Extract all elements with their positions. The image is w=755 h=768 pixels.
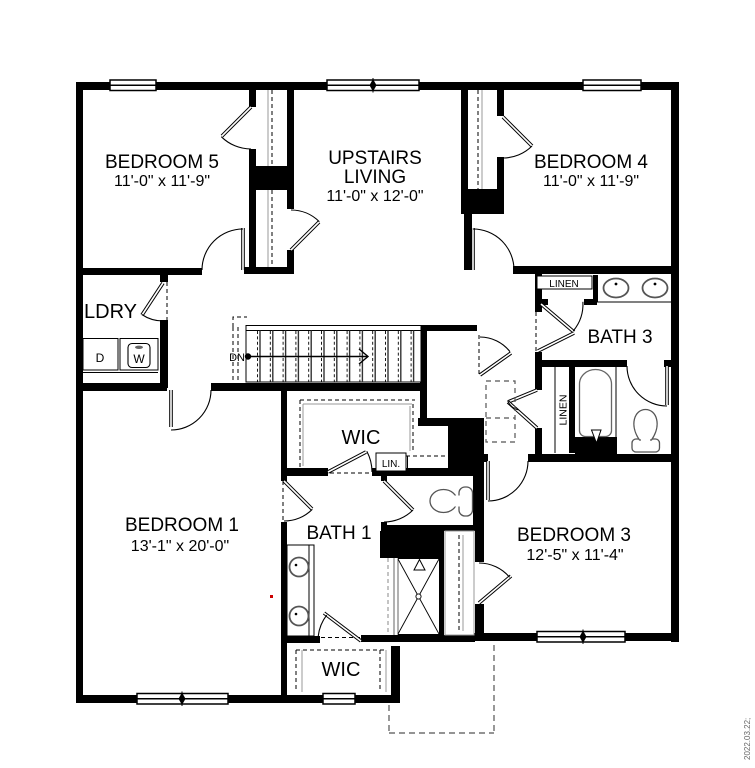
svg-text:11'-0" x 12'-0": 11'-0" x 12'-0" [326,188,423,205]
svg-text:LINEN: LINEN [549,279,578,290]
svg-text:LINEN: LINEN [558,395,570,426]
svg-text:BATH 1: BATH 1 [306,523,371,544]
svg-text:LIN.: LIN. [382,459,400,470]
svg-text:LIVING: LIVING [344,167,406,188]
svg-text:BATH 3: BATH 3 [587,327,652,348]
svg-text:BEDROOM 3: BEDROOM 3 [517,525,631,546]
svg-text:DN: DN [229,352,245,364]
svg-text:2022.03.22;: 2022.03.22; [743,718,752,760]
svg-text:BEDROOM 1: BEDROOM 1 [125,515,239,536]
svg-text:11'-0" x 11'-9": 11'-0" x 11'-9" [543,173,639,190]
svg-text:BEDROOM 4: BEDROOM 4 [534,152,648,173]
svg-text:WIC: WIC [322,659,361,681]
svg-text:BEDROOM 5: BEDROOM 5 [105,152,219,173]
svg-text:WIC: WIC [342,427,381,449]
svg-text:11'-0" x 11'-9": 11'-0" x 11'-9" [114,173,210,190]
svg-text:UPSTAIRS: UPSTAIRS [328,148,422,169]
svg-text:13'-1" x 20'-0": 13'-1" x 20'-0" [131,538,229,555]
svg-text:D: D [96,351,105,365]
svg-text:W: W [133,352,145,366]
svg-text:12'-5" x 11'-4": 12'-5" x 11'-4" [526,547,623,564]
svg-text:LDRY: LDRY [84,301,137,323]
